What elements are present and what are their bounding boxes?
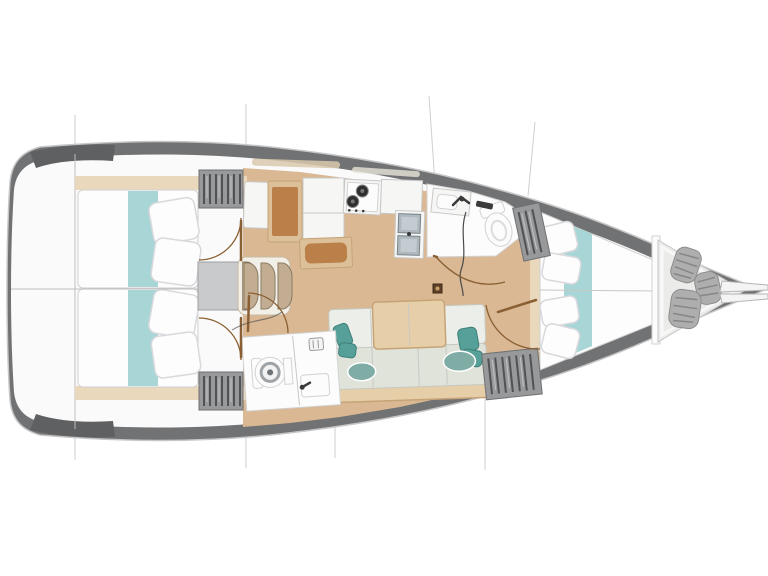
teal-cushion — [338, 342, 357, 358]
pillow — [150, 331, 201, 379]
step — [278, 263, 292, 309]
galley-counter — [380, 179, 422, 214]
wardrobe-aft-port — [199, 170, 243, 208]
yacht-floor-plan — [0, 0, 768, 576]
galley-sinks — [394, 211, 425, 259]
floor-plan-canvas — [0, 0, 768, 576]
toilet-tank — [283, 358, 293, 384]
nav-seat — [243, 182, 271, 229]
companionway-landing — [198, 262, 238, 310]
galley-locker-tall — [268, 181, 302, 242]
vent-icon — [309, 338, 324, 351]
salon-table — [372, 300, 446, 349]
wardrobe-forward-bottom — [482, 348, 543, 400]
forward-cabin — [530, 212, 658, 370]
pillow — [148, 196, 201, 245]
pillow — [150, 237, 202, 287]
teal-cushion — [457, 326, 480, 352]
galley-locker-low — [299, 237, 352, 269]
mast-post — [433, 284, 442, 293]
aft-head — [242, 331, 341, 411]
pillow — [539, 295, 580, 328]
stove — [343, 179, 382, 215]
berth-shelf — [530, 246, 540, 352]
companionway-steps — [238, 257, 292, 315]
seat-cushion — [443, 351, 476, 372]
pillow — [148, 288, 201, 339]
step — [244, 263, 258, 309]
wardrobe-aft-starboard — [199, 372, 243, 410]
seat-cushion — [347, 362, 376, 381]
fridge-counter — [303, 178, 344, 246]
pillow — [541, 252, 582, 285]
salon — [328, 298, 489, 402]
fender — [668, 288, 703, 330]
